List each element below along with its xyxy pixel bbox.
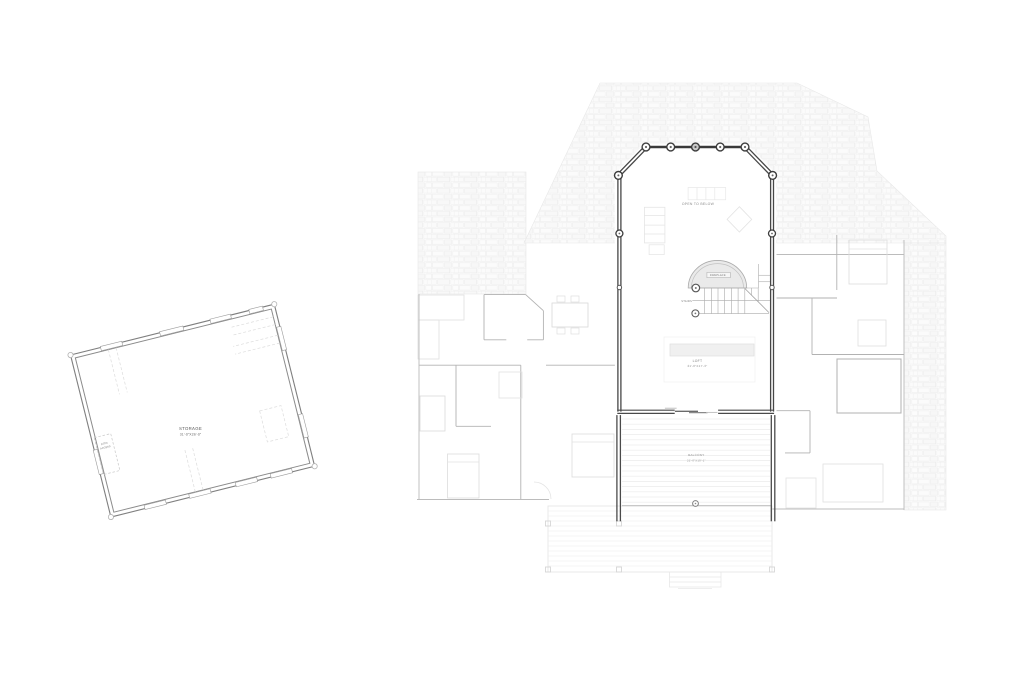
- svg-text:LOFT: LOFT: [693, 359, 703, 363]
- svg-text:FIREPLACE: FIREPLACE: [710, 274, 726, 277]
- svg-text:21'-0"X10'-1": 21'-0"X10'-1": [687, 458, 706, 462]
- svg-text:21'-0"X17'-3": 21'-0"X17'-3": [688, 364, 708, 368]
- svg-text:OPEN TO BELOW: OPEN TO BELOW: [682, 202, 715, 206]
- svg-text:BALCONY: BALCONY: [688, 453, 704, 457]
- svg-text:STAIRS: STAIRS: [681, 300, 692, 303]
- svg-text:31'-0"X26'-0": 31'-0"X26'-0": [180, 433, 202, 437]
- svg-text:STORAGE: STORAGE: [179, 426, 202, 431]
